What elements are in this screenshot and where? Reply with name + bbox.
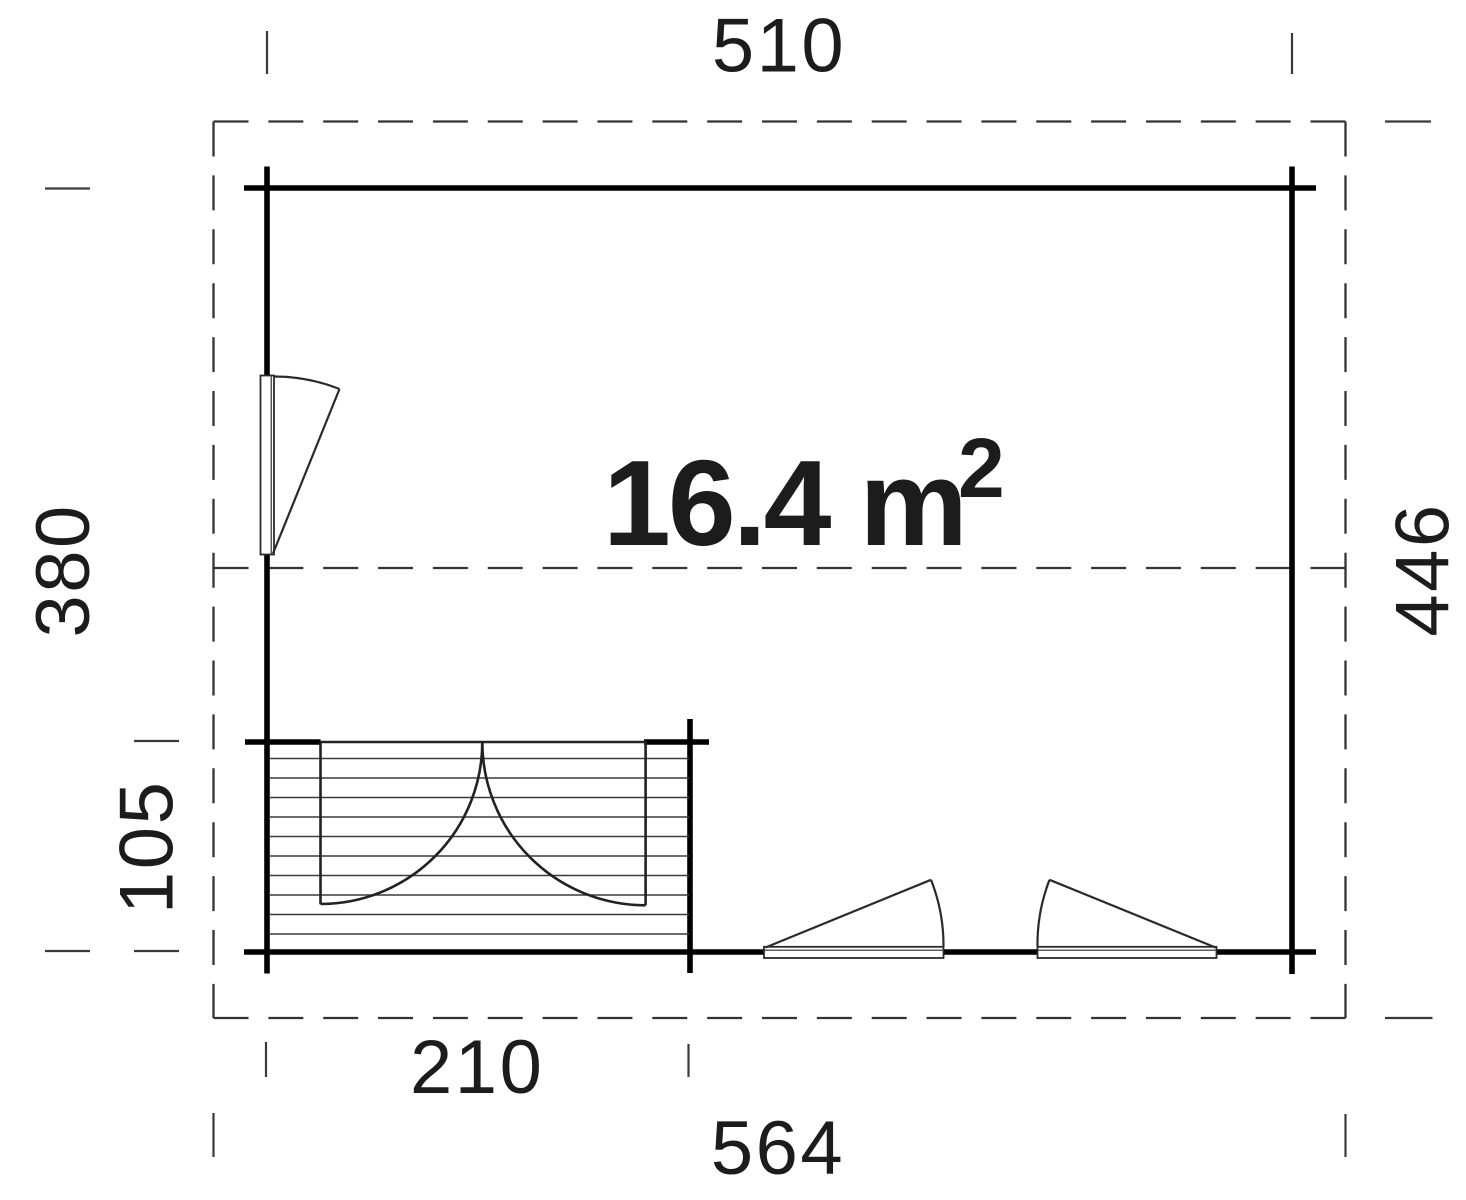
svg-text:2: 2 [958, 421, 1005, 515]
svg-text:510: 510 [712, 4, 846, 89]
svg-text:446: 446 [1380, 502, 1465, 636]
svg-text:210: 210 [410, 1025, 544, 1110]
svg-text:16.4 m: 16.4 m [603, 435, 965, 571]
svg-text:105: 105 [105, 780, 190, 914]
svg-text:380: 380 [21, 503, 106, 637]
svg-text:564: 564 [711, 1106, 845, 1191]
